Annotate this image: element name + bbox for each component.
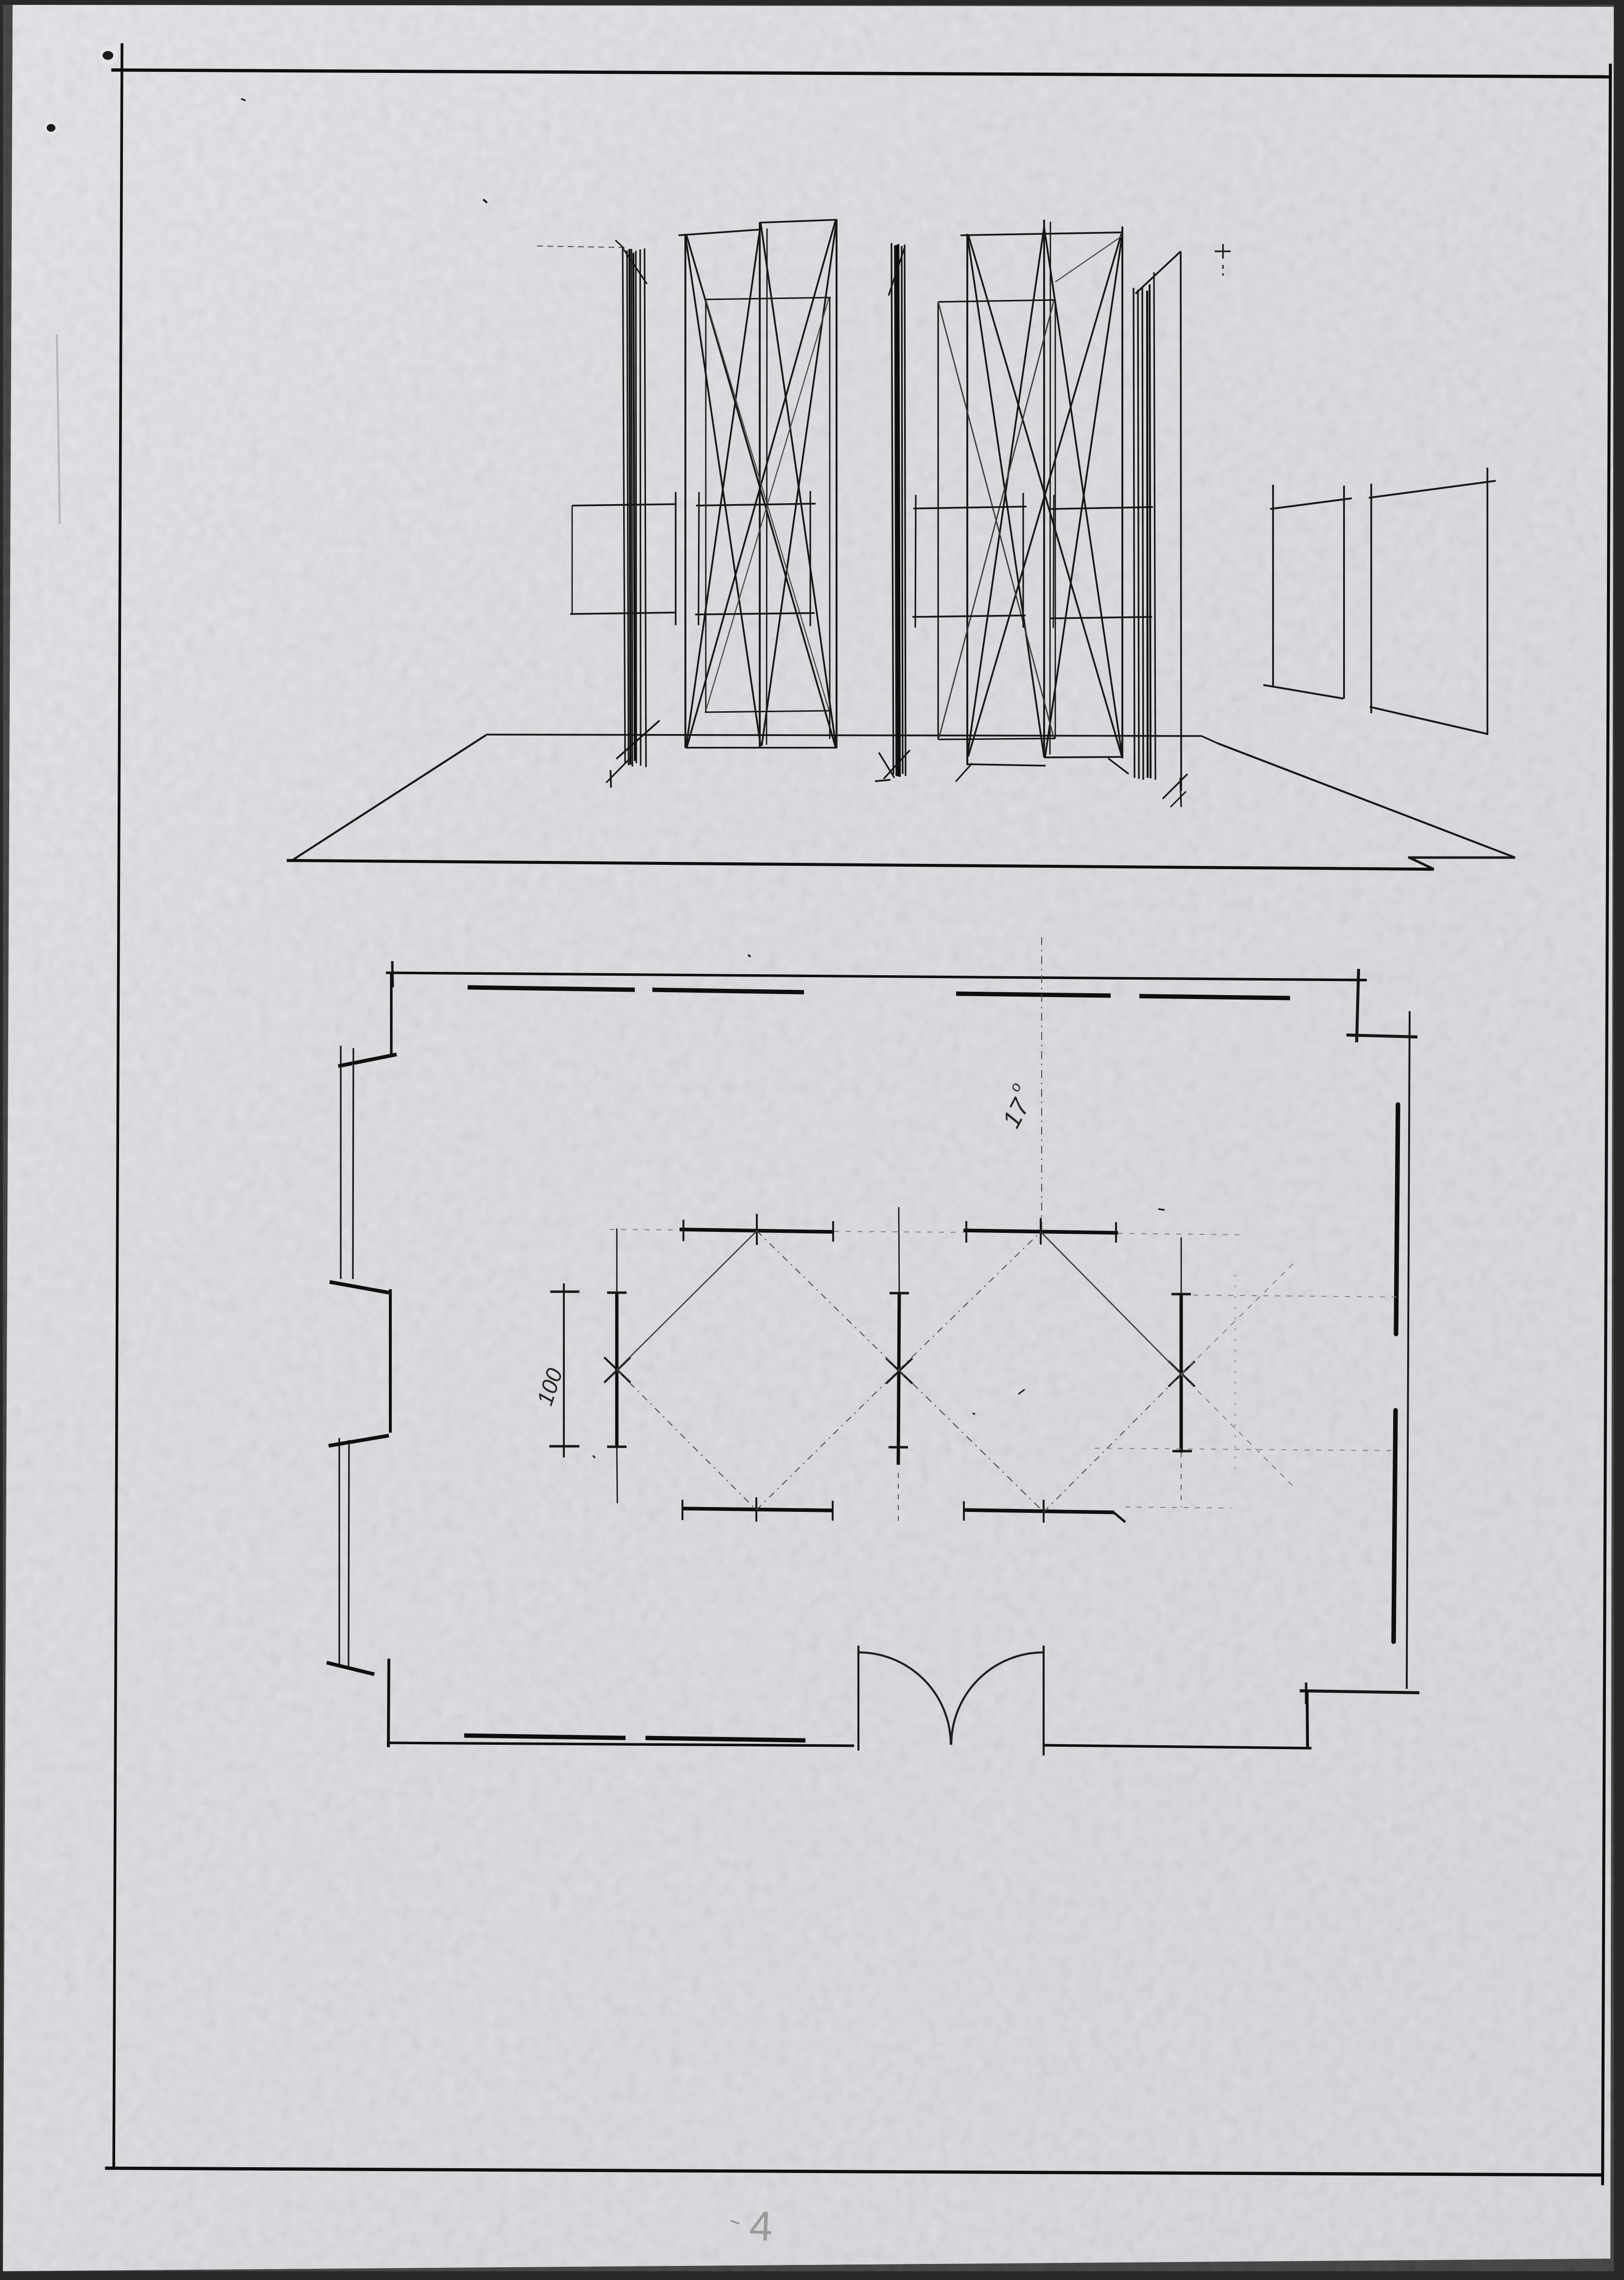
svg-text:4: 4 [749,2202,773,2250]
